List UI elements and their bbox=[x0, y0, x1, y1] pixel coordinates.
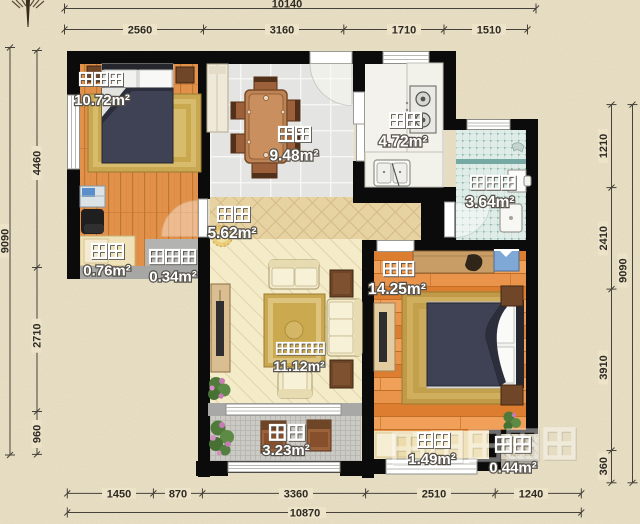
svg-text:5.62m²: 5.62m² bbox=[207, 225, 256, 242]
svg-text:870: 870 bbox=[169, 488, 187, 500]
svg-text:960: 960 bbox=[32, 425, 44, 443]
svg-text:2410: 2410 bbox=[598, 226, 610, 250]
svg-text:1240: 1240 bbox=[519, 488, 543, 500]
svg-text:9.48m²: 9.48m² bbox=[269, 148, 318, 165]
svg-text:0.34m²: 0.34m² bbox=[149, 269, 197, 286]
svg-text:3360: 3360 bbox=[284, 488, 308, 500]
svg-text:4.72m²: 4.72m² bbox=[378, 134, 427, 151]
svg-text:3160: 3160 bbox=[270, 25, 294, 37]
svg-text:9090: 9090 bbox=[0, 229, 12, 253]
svg-text:4460: 4460 bbox=[32, 151, 44, 175]
svg-text:2710: 2710 bbox=[32, 323, 44, 347]
svg-text:3910: 3910 bbox=[598, 355, 610, 379]
svg-text:14.25m²: 14.25m² bbox=[368, 281, 426, 298]
svg-text:10.72m²: 10.72m² bbox=[74, 92, 130, 109]
svg-text:3.23m²: 3.23m² bbox=[262, 442, 310, 459]
svg-text:9090: 9090 bbox=[618, 258, 630, 282]
svg-text:2510: 2510 bbox=[422, 488, 446, 500]
svg-text:1.49m²: 1.49m² bbox=[408, 451, 456, 468]
svg-text:0.76m²: 0.76m² bbox=[83, 263, 131, 280]
svg-text:360: 360 bbox=[598, 457, 610, 475]
svg-text:10870: 10870 bbox=[290, 507, 321, 519]
svg-text:1210: 1210 bbox=[598, 134, 610, 158]
svg-text:2560: 2560 bbox=[128, 25, 152, 37]
svg-text:11.12m²: 11.12m² bbox=[273, 358, 325, 374]
svg-text:1450: 1450 bbox=[107, 488, 131, 500]
svg-text:3.64m²: 3.64m² bbox=[465, 194, 514, 211]
svg-text:10140: 10140 bbox=[272, 0, 303, 11]
svg-text:0.44m²: 0.44m² bbox=[489, 460, 537, 477]
svg-text:1710: 1710 bbox=[392, 25, 416, 37]
svg-text:1510: 1510 bbox=[477, 25, 501, 37]
